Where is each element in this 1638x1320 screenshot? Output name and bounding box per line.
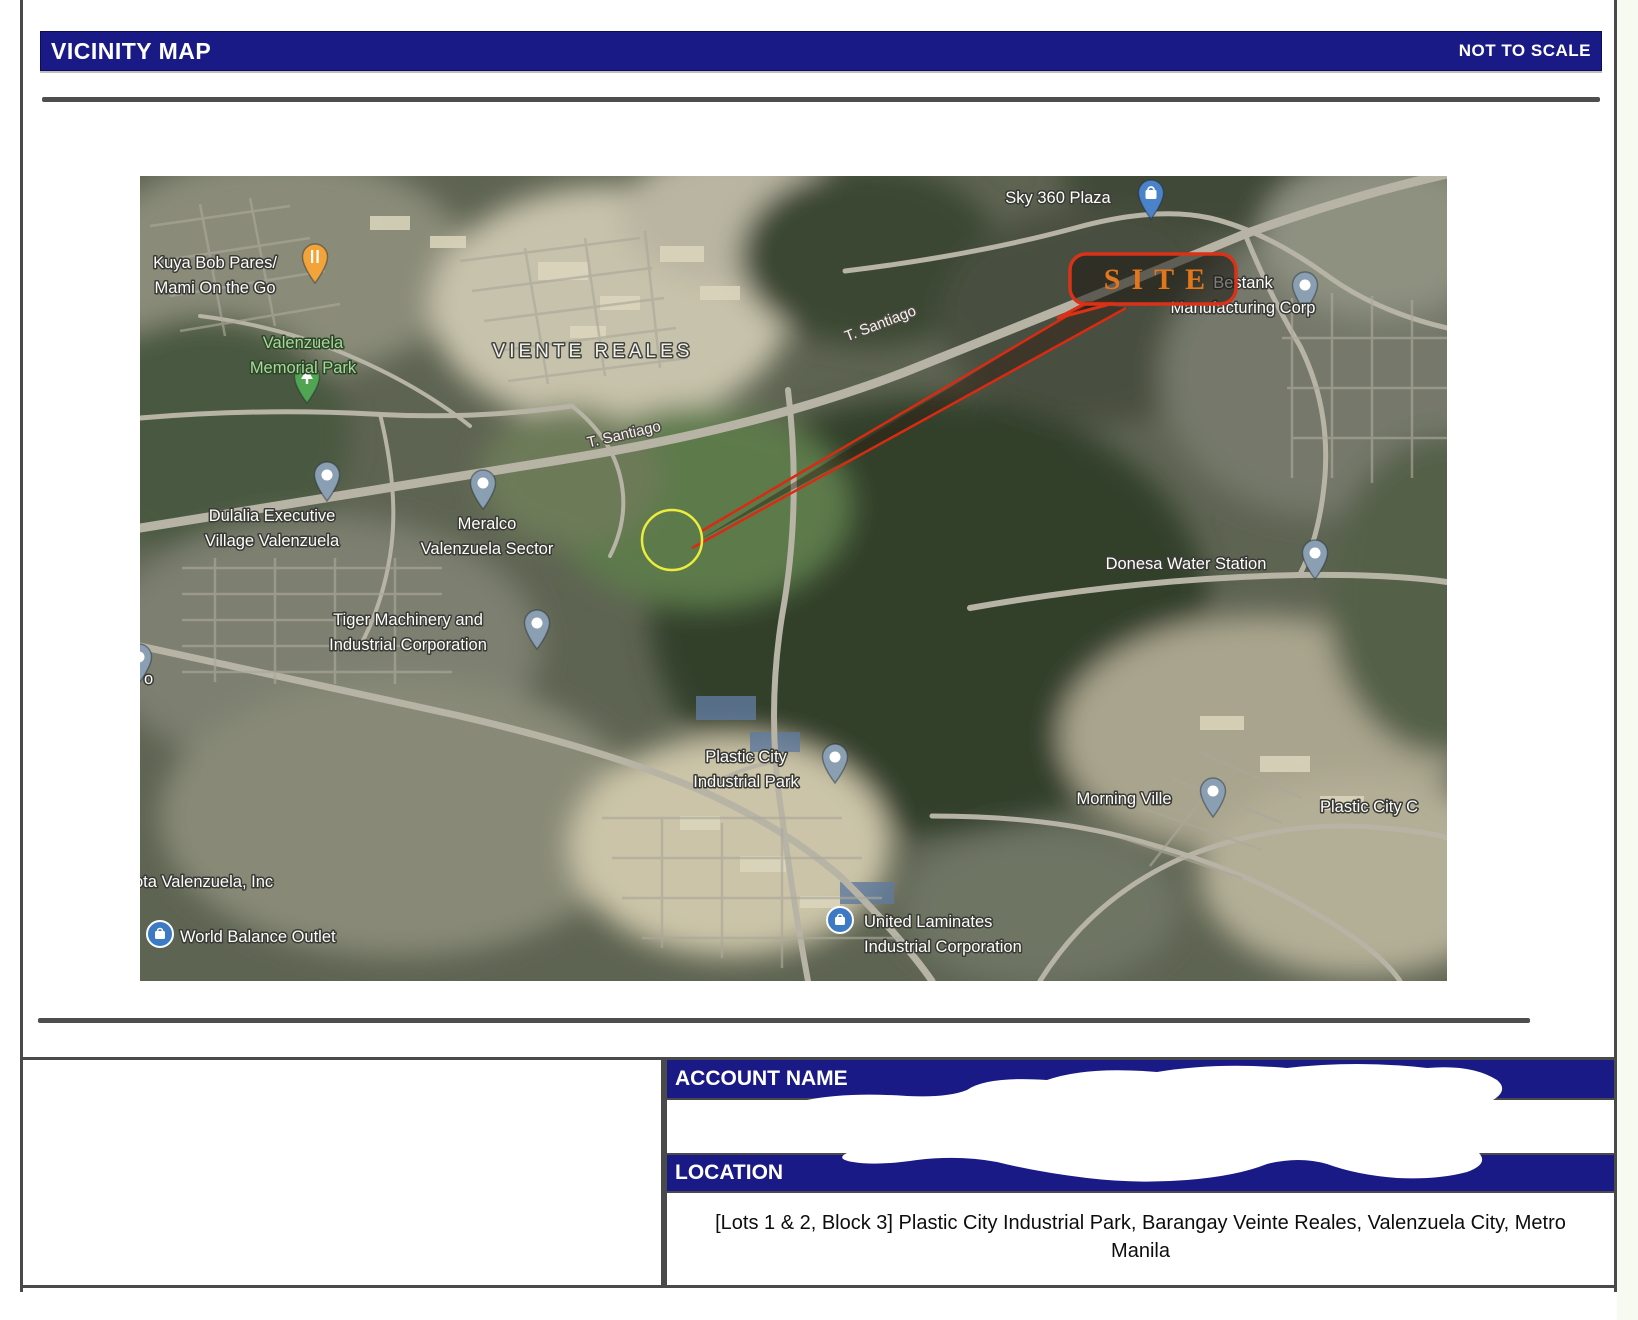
page-right-margin: [1617, 0, 1638, 1320]
map-label-world-balance-outlet: World Balance Outlet: [180, 928, 336, 946]
map-label-label-remnant-o: o: [144, 670, 153, 688]
map-label-kuya-bob-pares: Mami On the Go: [154, 279, 275, 297]
circle-shop-pin-icon: [827, 907, 853, 933]
bottom-left-empty-box: [20, 1057, 664, 1288]
map-label-valenzuela-memorial-park: Valenzuela: [263, 334, 344, 352]
circle-shop-pin-icon: [147, 921, 173, 947]
map-label-meralco-valenzuela-sector: Valenzuela Sector: [421, 540, 554, 558]
account-name-label: ACCOUNT NAME: [675, 1067, 848, 1091]
map-label-tiger-machinery: Industrial Corporation: [329, 636, 487, 654]
map-label-toyota-valenzuela: ota Valenzuela, Inc: [140, 873, 273, 891]
location-value: [Lots 1 & 2, Block 3] Plastic City Indus…: [667, 1193, 1614, 1265]
vicinity-title-bar: VICINITY MAP NOT TO SCALE: [40, 31, 1602, 71]
map-label-valenzuela-memorial-park: Memorial Park: [250, 359, 357, 377]
satellite-map-svg: Kuya Bob Pares/Mami On the GoValenzuelaM…: [140, 176, 1447, 981]
vicinity-map-page: VICINITY MAP NOT TO SCALE: [0, 0, 1638, 1320]
satellite-map: Kuya Bob Pares/Mami On the GoValenzuelaM…: [140, 176, 1447, 981]
scale-note: NOT TO SCALE: [1459, 41, 1591, 61]
map-label-plastic-city-industrial-park: Industrial Park: [693, 773, 799, 791]
map-label-plastic-city-c: Plastic City C: [1320, 798, 1418, 816]
map-label-plastic-city-industrial-park: Plastic City: [705, 748, 787, 766]
bottom-right-info-box: ACCOUNT NAME LOCATION [Lots 1 & 2, Block…: [664, 1057, 1617, 1288]
account-name-redacted-value: [667, 1100, 1614, 1153]
location-label: LOCATION: [675, 1161, 783, 1185]
map-label-meralco-valenzuela-sector: Meralco: [458, 515, 517, 533]
map-label-dulalia-executive-village: Village Valenzuela: [205, 532, 340, 550]
map-label-tiger-machinery: Tiger Machinery and: [333, 611, 483, 629]
bottom-divider-line: [38, 1018, 1530, 1023]
site-label: SITE: [1104, 263, 1216, 296]
map-label-donesa-water-station: Donesa Water Station: [1106, 555, 1267, 573]
account-name-header-bar: ACCOUNT NAME: [667, 1060, 1614, 1100]
map-label-united-laminates: Industrial Corporation: [864, 938, 1022, 956]
page-title: VICINITY MAP: [51, 38, 211, 65]
map-label-viente-reales: VIENTE REALES: [493, 341, 694, 362]
map-label-sky-360-plaza: Sky 360 Plaza: [1005, 189, 1111, 207]
map-label-kuya-bob-pares: Kuya Bob Pares/: [153, 254, 277, 272]
map-label-morning-ville: Morning Ville: [1076, 790, 1171, 808]
top-divider-line: [42, 97, 1600, 102]
map-label-dulalia-executive-village: Dulalia Executive: [209, 507, 336, 525]
map-label-united-laminates: United Laminates: [864, 913, 992, 931]
location-header-bar: LOCATION: [667, 1153, 1614, 1193]
